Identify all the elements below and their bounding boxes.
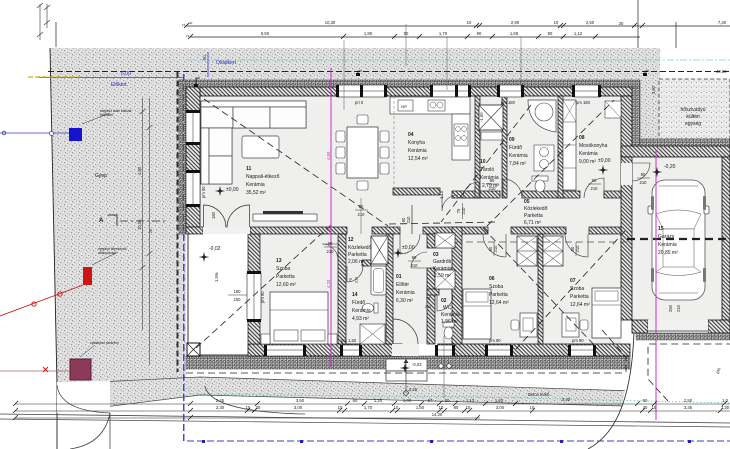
svg-text:3,50: 3,50: [296, 398, 305, 403]
svg-text:2,06 m²: 2,06 m²: [348, 259, 365, 265]
svg-text:210: 210: [461, 207, 466, 215]
svg-text:210: 210: [406, 216, 411, 224]
svg-text:Szoba: Szoba: [276, 266, 290, 272]
svg-text:90: 90: [404, 31, 409, 36]
svg-text:210: 210: [591, 186, 599, 191]
svg-text:pm 90: pm 90: [572, 338, 584, 343]
svg-text:30: 30: [619, 21, 624, 26]
svg-text:4,20: 4,20: [326, 279, 331, 288]
svg-text:06: 06: [489, 276, 495, 282]
svg-text:A: A: [99, 218, 104, 224]
svg-text:12,60 m²: 12,60 m²: [276, 282, 296, 288]
svg-text:egység: egység: [685, 121, 701, 127]
svg-text:30: 30: [643, 405, 648, 410]
svg-text:210: 210: [489, 186, 497, 191]
svg-text:Kerámia: Kerámia: [658, 242, 677, 248]
svg-text:60: 60: [445, 398, 450, 403]
svg-text:villanyoszlop: villanyoszlop: [98, 251, 116, 255]
svg-text:210: 210: [411, 263, 419, 268]
svg-text:Parketta: Parketta: [524, 213, 543, 219]
svg-text:1,00: 1,00: [403, 398, 412, 403]
svg-text:15: 15: [652, 405, 657, 410]
svg-text:hőszivattyú: hőszivattyú: [680, 107, 705, 113]
svg-text:-1,00: -1,00: [479, 112, 484, 122]
svg-text:14: 14: [352, 292, 358, 298]
svg-text:4,30: 4,30: [562, 397, 571, 402]
svg-text:Gyep: Gyep: [95, 173, 107, 179]
svg-text:Mosókonyha: Mosókonyha: [579, 143, 608, 149]
svg-text:210: 210: [676, 304, 681, 312]
svg-text:1,5%: 1,5%: [214, 272, 219, 282]
svg-text:Oldalkert: Oldalkert: [216, 60, 237, 66]
svg-text:1,70: 1,70: [364, 405, 373, 410]
svg-text:180: 180: [234, 289, 242, 294]
svg-text:05: 05: [524, 199, 530, 205]
svg-text:10: 10: [554, 20, 559, 25]
svg-text:03: 03: [433, 252, 439, 258]
svg-text:75: 75: [426, 296, 431, 301]
svg-text:1,13: 1,13: [466, 398, 475, 403]
svg-text:210: 210: [355, 277, 359, 283]
svg-text:10: 10: [480, 159, 486, 165]
svg-text:pm 90: pm 90: [201, 186, 206, 198]
svg-text:4,93 m²: 4,93 m²: [352, 316, 369, 322]
svg-text:15: 15: [182, 23, 186, 27]
svg-text:kültéri: kültéri: [686, 114, 699, 120]
svg-text:12,54 m²: 12,54 m²: [408, 156, 428, 162]
svg-text:2,50: 2,50: [586, 20, 595, 25]
svg-text:1,96 m²: 1,96 m²: [441, 319, 458, 325]
svg-text:90: 90: [592, 178, 597, 183]
svg-text:60: 60: [643, 398, 648, 403]
svg-text:Kerámia: Kerámia: [352, 308, 371, 314]
svg-text:90: 90: [477, 31, 482, 36]
svg-text:10: 10: [530, 405, 535, 410]
svg-text:Beton térkő: Beton térkő: [528, 392, 550, 397]
svg-text:2,90: 2,90: [511, 20, 520, 25]
svg-text:12,64 m²: 12,64 m²: [570, 302, 590, 308]
svg-text:90: 90: [328, 241, 333, 246]
svg-text:1,50: 1,50: [416, 405, 425, 410]
svg-text:WC: WC: [443, 305, 452, 311]
svg-text:1,80: 1,80: [364, 31, 373, 36]
svg-text:Szoba: Szoba: [570, 286, 584, 292]
svg-text:Fürdő: Fürdő: [509, 145, 522, 151]
svg-text:15: 15: [658, 226, 664, 232]
svg-text:-0,02: -0,02: [209, 246, 221, 252]
svg-text:Kerámia: Kerámia: [509, 153, 528, 159]
svg-text:pm 1,50: pm 1,50: [341, 338, 357, 343]
svg-text:210: 210: [425, 305, 431, 309]
svg-text:10: 10: [439, 405, 444, 410]
svg-text:210: 210: [640, 180, 648, 185]
svg-text:90: 90: [412, 255, 417, 260]
svg-text:pm 90: pm 90: [260, 291, 265, 303]
svg-text:7,84 m²: 7,84 m²: [509, 161, 526, 167]
svg-text:9,00 m²: 9,00 m²: [579, 159, 596, 165]
svg-text:Kerámia: Kerámia: [441, 312, 460, 318]
svg-text:Tároló: Tároló: [480, 167, 494, 173]
svg-text:-0,02: -0,02: [412, 362, 422, 367]
svg-text:09: 09: [509, 137, 515, 143]
svg-text:Parketta: Parketta: [489, 292, 508, 298]
svg-text:10: 10: [467, 20, 472, 25]
svg-text:1,20: 1,20: [495, 398, 504, 403]
svg-text:1,12: 1,12: [574, 31, 583, 36]
svg-text:20,85 m²: 20,85 m²: [658, 250, 678, 256]
svg-text:2,50: 2,50: [684, 398, 693, 403]
svg-text:Gardrób: Gardrób: [433, 259, 452, 265]
svg-text:Parketta: Parketta: [570, 294, 589, 300]
svg-text:1,10: 1,10: [439, 190, 444, 199]
svg-text:04: 04: [408, 132, 414, 138]
svg-text:pm 180: pm 180: [501, 100, 516, 105]
svg-text:HIP: HIP: [401, 105, 408, 109]
svg-text:pm 180: pm 180: [576, 100, 591, 105]
svg-text:90: 90: [641, 172, 646, 177]
svg-text:földkábel: földkábel: [100, 113, 113, 117]
svg-text:4,80: 4,80: [326, 151, 331, 160]
svg-text:±0,00: ±0,00: [598, 158, 611, 164]
svg-text:1,20: 1,20: [374, 398, 383, 403]
svg-text:90: 90: [548, 31, 553, 36]
svg-text:4,80: 4,80: [137, 166, 142, 175]
svg-text:Kerámia: Kerámia: [579, 151, 598, 157]
svg-text:10,05: 10,05: [137, 219, 142, 230]
svg-text:6,71 m²: 6,71 m²: [524, 220, 541, 226]
svg-text:15: 15: [246, 405, 251, 410]
svg-text:90: 90: [326, 226, 331, 231]
svg-text:7,30: 7,30: [721, 405, 730, 410]
svg-text:pri 0: pri 0: [355, 100, 364, 105]
svg-text:2,30: 2,30: [216, 405, 225, 410]
svg-text:Előkert: Előkert: [111, 82, 127, 88]
svg-text:±0,00: ±0,00: [226, 187, 239, 193]
svg-text:67: 67: [428, 398, 433, 403]
svg-text:Kerámia: Kerámia: [408, 148, 427, 154]
svg-text:10: 10: [338, 405, 343, 410]
svg-text:90: 90: [490, 178, 495, 183]
svg-text:2,59 m²: 2,59 m²: [434, 273, 451, 279]
svg-text:3,00: 3,00: [294, 405, 303, 410]
svg-text:90: 90: [454, 405, 459, 410]
svg-text:10: 10: [466, 405, 471, 410]
svg-text:Konyha: Konyha: [408, 140, 425, 146]
svg-text:10,30: 10,30: [325, 20, 336, 25]
svg-text:90: 90: [359, 204, 364, 209]
svg-text:14,20: 14,20: [432, 412, 443, 417]
svg-text:15: 15: [186, 34, 190, 38]
svg-text:Kerámia: Kerámia: [246, 182, 265, 188]
svg-text:Közlekedő: Közlekedő: [524, 206, 548, 212]
svg-text:10: 10: [394, 405, 399, 410]
svg-text:Közlekedő: Közlekedő: [348, 245, 372, 251]
svg-text:1,68: 1,68: [510, 31, 519, 36]
svg-text:csatlakozó szekrény: csatlakozó szekrény: [90, 341, 119, 345]
svg-text:0,25: 0,25: [409, 387, 418, 392]
svg-text:Parketta: Parketta: [348, 252, 367, 258]
svg-text:13: 13: [276, 258, 282, 264]
svg-text:12: 12: [348, 237, 354, 243]
svg-text:3,00: 3,00: [651, 85, 656, 94]
svg-text:30: 30: [189, 21, 193, 25]
svg-text:Előtér: Előtér: [396, 282, 409, 288]
svg-text:-0,20: -0,20: [664, 164, 676, 170]
svg-text:3,35: 3,35: [684, 405, 693, 410]
svg-text:Kerámia: Kerámia: [433, 266, 452, 272]
svg-text:2,45: 2,45: [216, 398, 225, 403]
svg-text:150: 150: [234, 297, 242, 302]
svg-text:Kerámia: Kerámia: [396, 290, 415, 296]
svg-text:6,00: 6,00: [121, 71, 131, 77]
svg-text:210: 210: [358, 212, 366, 217]
svg-text:02: 02: [441, 298, 447, 304]
svg-text:±0,00: ±0,00: [402, 245, 415, 251]
svg-text:Fürdő: Fürdő: [352, 300, 365, 306]
svg-text:90: 90: [202, 55, 207, 60]
svg-text:5,50: 5,50: [261, 31, 270, 36]
svg-text:07: 07: [570, 278, 576, 284]
svg-text:60: 60: [353, 398, 358, 403]
svg-text:Nappali-étkező: Nappali-étkező: [246, 174, 280, 180]
svg-text:Szoba: Szoba: [489, 284, 503, 290]
svg-text:7,30: 7,30: [718, 20, 727, 25]
svg-text:01: 01: [396, 274, 402, 280]
svg-text:Garázs: Garázs: [658, 234, 675, 240]
svg-text:08: 08: [579, 135, 585, 141]
svg-text:180: 180: [211, 211, 216, 219]
svg-text:35,52 m²: 35,52 m²: [246, 190, 266, 196]
svg-text:1,70: 1,70: [439, 31, 448, 36]
svg-text:3,00: 3,00: [496, 405, 505, 410]
svg-text:210: 210: [327, 249, 335, 254]
svg-text:11: 11: [246, 166, 252, 172]
svg-text:250: 250: [668, 304, 673, 312]
svg-text:12,64 m²: 12,64 m²: [489, 300, 509, 306]
svg-text:75: 75: [349, 278, 353, 282]
svg-text:6,30 m²: 6,30 m²: [396, 298, 413, 304]
svg-text:1,0: 1,0: [722, 398, 728, 403]
svg-text:20: 20: [149, 229, 153, 233]
svg-text:Parketta: Parketta: [276, 274, 295, 280]
svg-text:30: 30: [256, 405, 261, 410]
